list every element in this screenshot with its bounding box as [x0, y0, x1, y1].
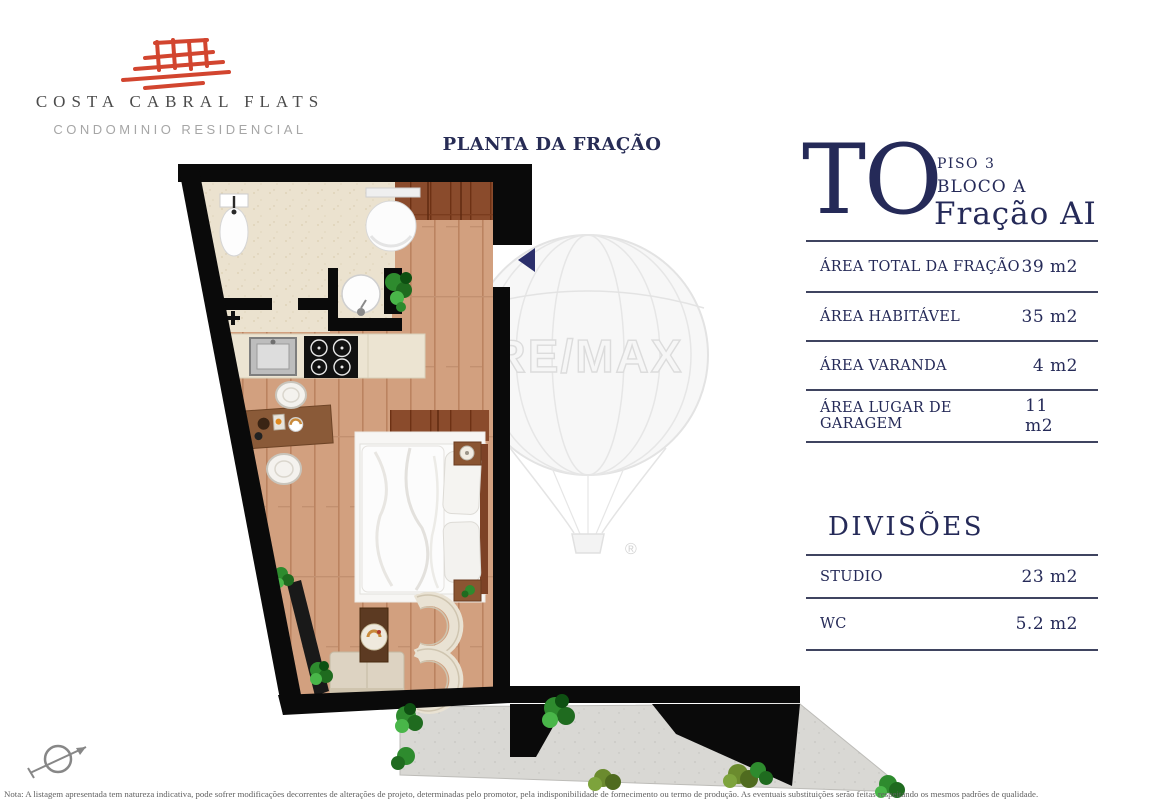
- divisions-table: STUDIO 23 m2 WC 5.2 m2: [806, 554, 1098, 651]
- watermark-registered-mark: ®: [625, 541, 637, 558]
- flyer-page: COSTA CABRAL FLATS CONDOMINIO RESIDENCIA…: [0, 0, 1176, 800]
- division-row: WC 5.2 m2: [806, 597, 1098, 651]
- kitchen-sink: [250, 338, 296, 375]
- breakfast-bar: [243, 405, 333, 449]
- division-row: STUDIO 23 m2: [806, 554, 1098, 597]
- kitchen-counter: [228, 334, 425, 378]
- unit-code: TO: [802, 132, 941, 228]
- divisions-heading: DIVISÕES: [828, 512, 984, 542]
- watermark-text: RE/MAX: [493, 330, 684, 382]
- area-value: 11 m2: [1025, 396, 1078, 436]
- area-label: ÁREA TOTAL DA FRAÇÃO: [820, 259, 1020, 275]
- unit-floor: PISO 3: [937, 156, 995, 172]
- plan-title: PLANTA DA FRAÇÃO: [402, 134, 702, 155]
- area-value: 4 m2: [1033, 356, 1078, 376]
- division-value: 5.2 m2: [1016, 614, 1078, 634]
- north-compass-icon: [22, 732, 94, 788]
- bidet: [220, 194, 248, 256]
- cooktop: [304, 336, 358, 378]
- area-row: ÁREA VARANDA 4 m2: [806, 340, 1098, 389]
- footnote: Nota: A listagem apresentada tem naturez…: [4, 789, 1176, 799]
- unit-fraction: Fração AI: [934, 196, 1097, 232]
- brand-subtitle: CONDOMINIO RESIDENCIAL: [30, 122, 330, 137]
- brand-name: COSTA CABRAL FLATS: [20, 92, 340, 112]
- unit-info-panel: TO PISO 3 BLOCO A Fração AI ÁREA TOTAL D…: [806, 146, 1098, 706]
- areas-table: ÁREA TOTAL DA FRAÇÃO 39 m2 ÁREA HABITÁVE…: [806, 240, 1098, 443]
- area-label: ÁREA LUGAR DE GARAGEM: [820, 400, 1025, 432]
- coffee-table: [360, 608, 388, 662]
- division-value: 23 m2: [1022, 567, 1078, 587]
- division-label: STUDIO: [820, 569, 883, 585]
- costa-cabral-logo-icon: [115, 36, 247, 94]
- area-label: ÁREA VARANDA: [820, 358, 947, 374]
- floor-plan: RE/MAX ®: [170, 156, 910, 800]
- area-value: 39 m2: [1022, 257, 1078, 277]
- area-row: ÁREA TOTAL DA FRAÇÃO 39 m2: [806, 240, 1098, 291]
- unit-block: BLOCO A: [937, 177, 1026, 197]
- area-row: ÁREA LUGAR DE GARAGEM 11 m2: [806, 389, 1098, 443]
- division-label: WC: [820, 616, 847, 632]
- nightstand: [454, 442, 481, 465]
- area-label: ÁREA HABITÁVEL: [820, 309, 960, 325]
- area-row: ÁREA HABITÁVEL 35 m2: [806, 291, 1098, 340]
- area-value: 35 m2: [1022, 307, 1078, 327]
- bar-stool: [276, 382, 306, 408]
- bar-stool: [267, 454, 301, 484]
- nightstand: [454, 580, 481, 601]
